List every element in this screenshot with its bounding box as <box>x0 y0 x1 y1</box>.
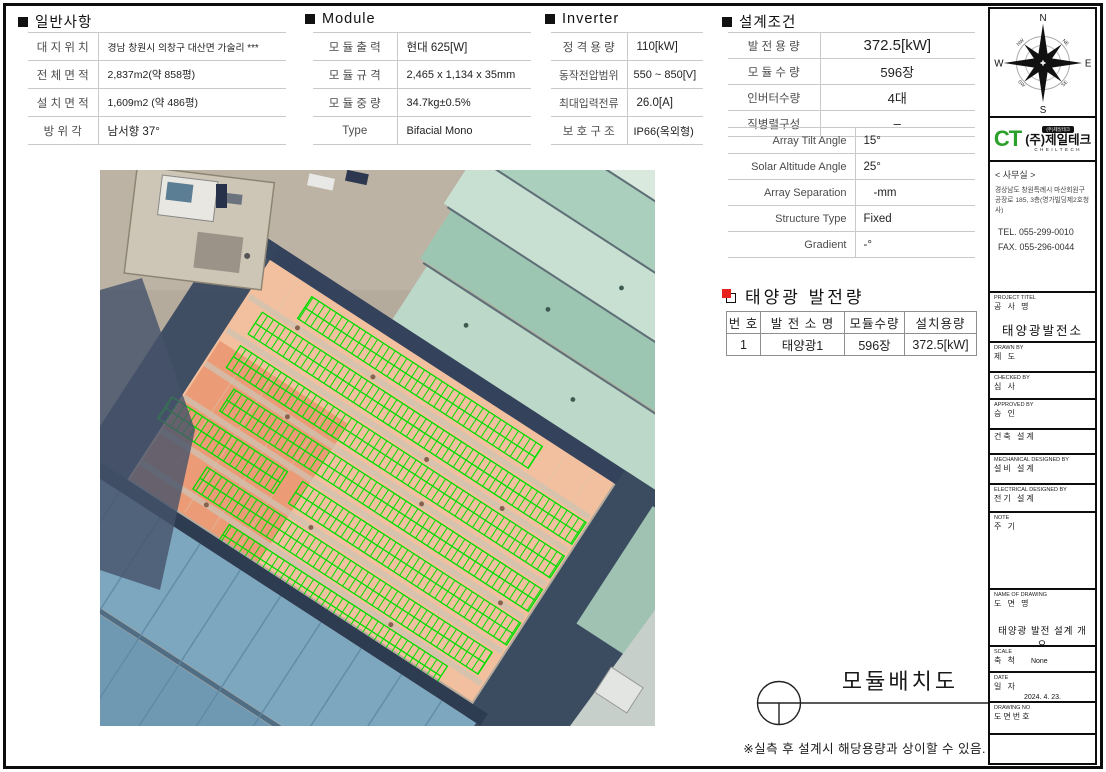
block-label-kr: 설비 설계 <box>994 464 1091 474</box>
satellite-map <box>100 170 655 726</box>
table-row: 발 전 용 량372.5[kW] <box>728 33 975 59</box>
table-row: 설 치 면 적1,609m2 (약 486평) <box>28 89 286 117</box>
inverter-table: 정 격 용 량110[kW] 동작전압범위550 ~ 850[V] 최대입력전류… <box>551 32 703 145</box>
row-label: 보 호 구 조 <box>551 117 627 145</box>
checked-by-block: CHECKED BY 심 사 <box>990 373 1095 400</box>
row-value: 596장 <box>820 59 975 85</box>
row-value: -° <box>855 232 975 258</box>
table-row: Structure TypeFixed <box>728 206 975 232</box>
row-label: 모 듈 출 력 <box>313 33 397 61</box>
compass-section: N E S W NE NW SE SW <box>990 9 1095 118</box>
block-label-kr: 심 사 <box>994 382 1091 392</box>
inverter-title: Inverter <box>562 11 619 27</box>
svg-text:NW: NW <box>1015 37 1025 47</box>
drawing-no-block: DRAWING NO 도면번호 <box>990 703 1095 735</box>
table-row: 전 체 면 적2,837m2(약 858평) <box>28 61 286 89</box>
cell-plant-name: 태양광1 <box>761 334 845 356</box>
row-label: 정 격 용 량 <box>551 33 627 61</box>
table-row: 모 듈 규 격2,465 x 1,134 x 35mm <box>313 61 531 89</box>
compass-rose-icon: N E S W NE NW SE SW <box>992 11 1094 115</box>
office-address-line2: 공장로 185, 3층(영가빌딩제2호청사) <box>995 196 1090 216</box>
drawing-name-value: 태양광 발전 설계 개요 <box>994 623 1091 647</box>
generation-table: 번 호 발 전 소 명 모듈수량 설치용량 1 태양광1 596장 372.5[… <box>726 311 977 356</box>
table-row: Gradient-° <box>728 232 975 258</box>
block-label-en: DATE <box>994 675 1091 682</box>
row-value: -mm <box>855 180 975 206</box>
table-row: Solar Altitude Angle25° <box>728 154 975 180</box>
drawing-sheet: 일반사항 대 지 위 치경남 창원시 의창구 대산면 가술리 *** 전 체 면… <box>0 0 1106 772</box>
row-label: Structure Type <box>728 206 855 232</box>
table-row: TypeBifacial Mono <box>313 117 531 145</box>
project-title-value: 태양광발전소 <box>994 320 1091 339</box>
date-block: DATE 일 자 2024. 4. 23. <box>990 673 1095 703</box>
block-label-en: DRAWN BY <box>994 345 1091 352</box>
drawing-title: 모듈배치도 <box>810 664 990 696</box>
office-address-line1: 경상남도 창원특례시 마산회원구 <box>995 186 1090 196</box>
block-label-kr: 승 인 <box>994 409 1091 419</box>
svg-text:SW: SW <box>1016 78 1026 88</box>
row-value: 1,609m2 (약 486평) <box>98 89 286 117</box>
row-value: 110[kW] <box>627 33 703 61</box>
row-value: IP66(옥외형) <box>627 117 703 145</box>
block-label-kr: 건축 설계 <box>994 432 1091 442</box>
design-title: 설계조건 <box>739 11 796 32</box>
row-value: 372.5[kW] <box>820 33 975 59</box>
row-label: Gradient <box>728 232 855 258</box>
row-value: 15° <box>855 128 975 154</box>
block-label-kr: 도 면 명 <box>994 599 1091 609</box>
table-row: 방 위 각남서향 37° <box>28 117 286 145</box>
table-row: 동작전압범위550 ~ 850[V] <box>551 61 703 89</box>
table-row: 보 호 구 조IP66(옥외형) <box>551 117 703 145</box>
table-row: 모 듈 수 량596장 <box>728 59 975 85</box>
row-label: 최대입력전류 <box>551 89 627 117</box>
row-label: 모 듈 중 량 <box>313 89 397 117</box>
general-title: 일반사항 <box>35 11 92 32</box>
electrical-design-block: ELECTRICAL DESIGNED BY 전기 설계 <box>990 485 1095 513</box>
block-label-en: NOTE <box>994 515 1091 522</box>
block-label-kr: 주 기 <box>994 522 1091 532</box>
design-section-header: 설계조건 <box>722 11 796 32</box>
generation-section-header: 태양광 발전량 <box>722 283 865 308</box>
office-fax: FAX. 055-296-0044 <box>998 240 1090 255</box>
office-info-section: < 사무실 > 경상남도 창원특례시 마산회원구 공장로 185, 3층(영가빌… <box>990 162 1095 293</box>
square-bullet-icon <box>545 14 555 24</box>
block-label-kr: 일 자 <box>994 682 1091 692</box>
row-value: 경남 창원시 의창구 대산면 가술리 *** <box>98 33 286 61</box>
block-label-kr: 도면번호 <box>994 712 1091 722</box>
design-table-en: Array Tilt Angle15° Solar Altitude Angle… <box>728 127 975 258</box>
date-value: 2024. 4. 23. <box>994 694 1091 701</box>
row-label: 발 전 용 량 <box>728 33 820 59</box>
block-label-kr: 제 도 <box>994 352 1091 362</box>
row-label: Solar Altitude Angle <box>728 154 855 180</box>
svg-text:NE: NE <box>1060 38 1070 48</box>
row-label: 설 치 면 적 <box>28 89 98 117</box>
row-label: 모 듈 수 량 <box>728 59 820 85</box>
logo-badge: (주)제일테크 <box>1042 126 1074 133</box>
square-bullet-icon <box>18 17 28 27</box>
row-value: 2,465 x 1,134 x 35mm <box>397 61 531 89</box>
cell-no: 1 <box>727 334 761 356</box>
note-block: NOTE 주 기 <box>990 513 1095 590</box>
module-table: 모 듈 출 력현대 625[W] 모 듈 규 격2,465 x 1,134 x … <box>313 32 531 145</box>
drawing-name-block: NAME OF DRAWING 도 면 명 태양광 발전 설계 개요 <box>990 590 1095 647</box>
table-row: 인버터수량4대 <box>728 85 975 111</box>
table-row: 모 듈 출 력현대 625[W] <box>313 33 531 61</box>
col-header: 발 전 소 명 <box>761 312 845 334</box>
svg-text:SE: SE <box>1060 78 1069 87</box>
table-row: Array Tilt Angle15° <box>728 128 975 154</box>
scale-value: None <box>1031 658 1048 665</box>
mechanical-design-block: MECHANICAL DESIGNED BY 설비 설계 <box>990 455 1095 485</box>
row-value: Fixed <box>855 206 975 232</box>
block-label-kr: 공 사 명 <box>994 302 1091 312</box>
svg-text:E: E <box>1084 58 1091 69</box>
general-table: 대 지 위 치경남 창원시 의창구 대산면 가술리 *** 전 체 면 적2,8… <box>28 32 286 145</box>
row-label: Type <box>313 117 397 145</box>
drawn-by-block: DRAWN BY 제 도 <box>990 343 1095 373</box>
row-label: 동작전압범위 <box>551 61 627 89</box>
square-bullet-icon <box>305 14 315 24</box>
row-value: 25° <box>855 154 975 180</box>
cell-capacity: 372.5[kW] <box>905 334 977 356</box>
utility-building <box>124 170 274 290</box>
company-name-en: CHEILTECH <box>1034 147 1082 152</box>
inverter-section-header: Inverter <box>545 11 619 27</box>
row-label: 인버터수량 <box>728 85 820 111</box>
table-row: 모 듈 중 량34.7kg±0.5% <box>313 89 531 117</box>
block-label-kr: 축 척 <box>994 656 1017 666</box>
design-table-kr: 발 전 용 량372.5[kW] 모 듈 수 량596장 인버터수량4대 직병렬… <box>728 32 975 137</box>
table-row: Array Separation-mm <box>728 180 975 206</box>
svg-text:W: W <box>994 58 1004 69</box>
row-value: 현대 625[W] <box>397 33 531 61</box>
company-name: (주)제일테크 <box>1025 133 1091 147</box>
module-title: Module <box>322 11 376 27</box>
row-label: 방 위 각 <box>28 117 98 145</box>
row-label: Array Separation <box>728 180 855 206</box>
row-value: 26.0[A] <box>627 89 703 117</box>
svg-text:N: N <box>1039 12 1046 23</box>
empty-block <box>990 735 1095 763</box>
project-title-block: PROJECT TITEL 공 사 명 태양광발전소 <box>990 293 1095 343</box>
block-label-kr: 전기 설계 <box>994 494 1091 504</box>
scale-block: SCALE 축 척 None <box>990 647 1095 673</box>
architecture-design-block: 건축 설계 <box>990 430 1095 455</box>
row-value: 2,837m2(약 858평) <box>98 61 286 89</box>
block-label-en: SCALE <box>994 649 1091 656</box>
row-value: 550 ~ 850[V] <box>627 61 703 89</box>
table-row: 정 격 용 량110[kW] <box>551 33 703 61</box>
row-value: 34.7kg±0.5% <box>397 89 531 117</box>
col-header: 설치용량 <box>905 312 977 334</box>
office-header: < 사무실 > <box>995 168 1090 181</box>
col-header: 모듈수량 <box>845 312 905 334</box>
table-header-row: 번 호 발 전 소 명 모듈수량 설치용량 <box>727 312 977 334</box>
row-value: 남서향 37° <box>98 117 286 145</box>
company-logo-icon: CT <box>994 126 1021 152</box>
row-value: 4대 <box>820 85 975 111</box>
generation-title: 태양광 발전량 <box>745 283 865 308</box>
company-logo-section: CT (주)제일테크 (주)제일테크 CHEILTECH <box>990 118 1095 162</box>
table-row: 대 지 위 치경남 창원시 의창구 대산면 가술리 *** <box>28 33 286 61</box>
office-tel: TEL. 055-299-0010 <box>998 225 1090 240</box>
general-section-header: 일반사항 <box>18 11 92 32</box>
square-bullet-icon <box>722 17 732 27</box>
module-section-header: Module <box>305 11 376 27</box>
table-row: 1 태양광1 596장 372.5[kW] <box>727 334 977 356</box>
row-label: 대 지 위 치 <box>28 33 98 61</box>
cell-module-count: 596장 <box>845 334 905 356</box>
col-header: 번 호 <box>727 312 761 334</box>
row-label: Array Tilt Angle <box>728 128 855 154</box>
title-block-sidebar: N E S W NE NW SE SW CT (주)제일테크 (주)제일테크 C… <box>988 7 1097 765</box>
approved-by-block: APPROVED BY 승 인 <box>990 400 1095 430</box>
svg-text:S: S <box>1039 105 1046 115</box>
overlap-squares-icon <box>722 289 737 303</box>
footnote: ※실측 후 설계시 해당용량과 상이할 수 있음. <box>740 738 986 757</box>
row-label: 전 체 면 적 <box>28 61 98 89</box>
row-label: 모 듈 규 격 <box>313 61 397 89</box>
table-row: 최대입력전류26.0[A] <box>551 89 703 117</box>
row-value: Bifacial Mono <box>397 117 531 145</box>
